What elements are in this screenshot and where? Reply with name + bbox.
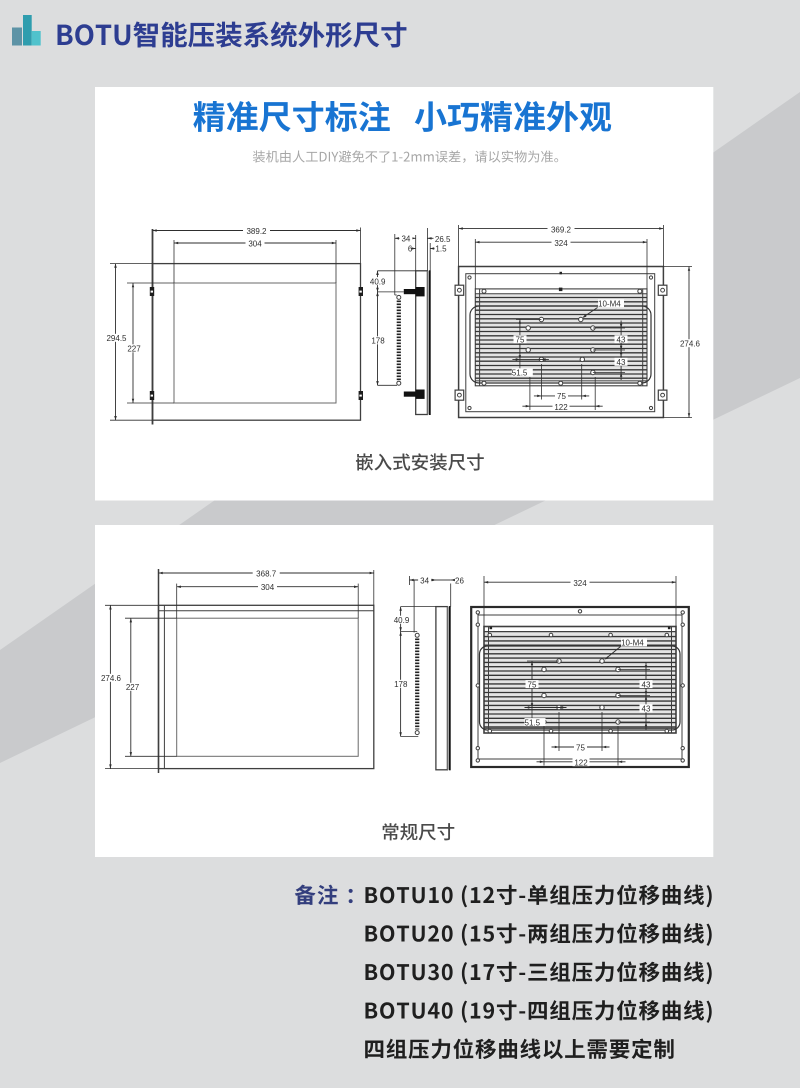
svg-text:304: 304 (248, 239, 262, 248)
svg-text:43: 43 (617, 358, 626, 367)
svg-text:34: 34 (401, 235, 410, 244)
svg-text:10-M4: 10-M4 (621, 639, 644, 648)
svg-text:368.7: 368.7 (256, 570, 277, 579)
svg-text:324: 324 (554, 239, 568, 248)
svg-text:75: 75 (576, 744, 585, 753)
svg-text:40.9: 40.9 (394, 616, 410, 625)
svg-text:304: 304 (261, 583, 275, 592)
svg-text:40.9: 40.9 (370, 277, 386, 286)
svg-text:75: 75 (528, 680, 537, 689)
svg-text:10-M4: 10-M4 (598, 300, 621, 309)
svg-text:389.2: 389.2 (246, 227, 267, 236)
svg-text:26.5: 26.5 (435, 235, 451, 244)
svg-text:34: 34 (420, 576, 429, 585)
svg-text:274.6: 274.6 (680, 339, 701, 348)
svg-text:178: 178 (394, 680, 408, 689)
svg-text:1.5: 1.5 (435, 245, 447, 254)
svg-text:122: 122 (554, 403, 568, 412)
svg-text:227: 227 (126, 683, 140, 692)
svg-text:43: 43 (642, 705, 651, 714)
svg-text:51.5: 51.5 (512, 369, 528, 378)
svg-text:227: 227 (127, 345, 141, 354)
svg-text:274.6: 274.6 (101, 674, 122, 683)
svg-text:294.5: 294.5 (106, 334, 127, 343)
svg-text:26: 26 (455, 576, 464, 585)
svg-text:75: 75 (557, 392, 566, 401)
svg-text:369.2: 369.2 (551, 225, 572, 234)
svg-text:324: 324 (573, 579, 587, 588)
svg-text:43: 43 (642, 680, 651, 689)
svg-text:178: 178 (371, 337, 385, 346)
svg-text:122: 122 (574, 758, 588, 767)
svg-text:51.5: 51.5 (525, 718, 541, 727)
svg-text:75: 75 (516, 336, 525, 345)
